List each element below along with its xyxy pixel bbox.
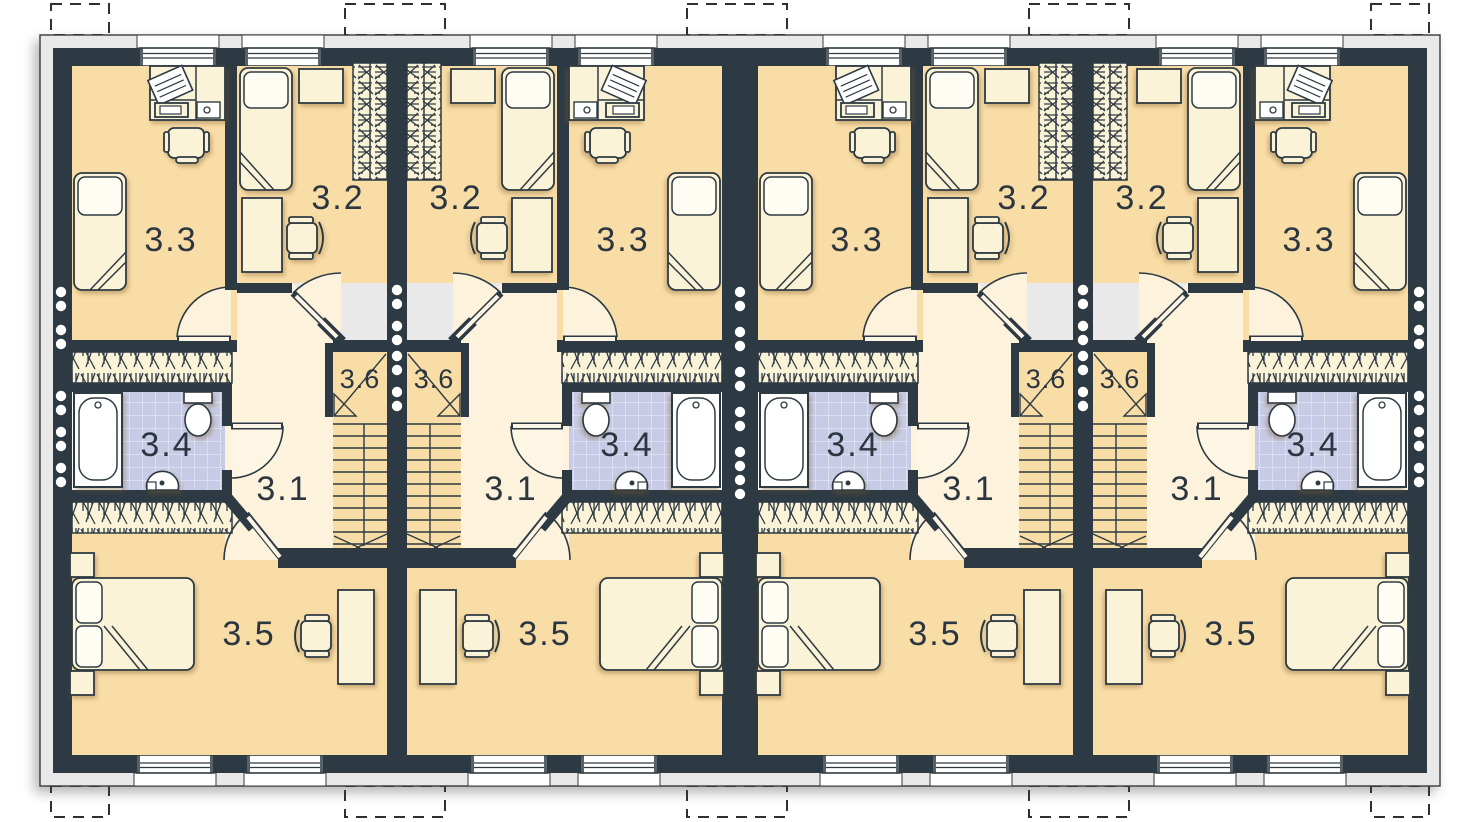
room-label-3-2: 3.2	[311, 179, 364, 217]
room-label-3-1: 3.1	[942, 470, 995, 508]
window-icon	[928, 35, 1010, 66]
window-icon	[578, 755, 660, 786]
window-icon	[1261, 35, 1343, 66]
central-party-wall	[722, 48, 758, 755]
building: 3.3 3.2 3.1 3.4 3.5 3.6 3.3 3.2 3.1 3.4 …	[40, 35, 1440, 786]
room-label-3-2: 3.2	[1115, 179, 1168, 217]
room-label-3-1: 3.1	[484, 470, 537, 508]
window-icon	[470, 35, 552, 66]
room-label-3-1: 3.1	[256, 470, 309, 508]
room-label-3-5: 3.5	[222, 615, 275, 653]
room-label-3-4: 3.4	[140, 426, 193, 464]
window-icon	[575, 35, 657, 66]
room-label-3-1: 3.1	[1170, 470, 1223, 508]
window-icon	[1154, 755, 1236, 786]
room-label-3-3: 3.3	[1282, 221, 1335, 259]
room-label-3-6: 3.6	[414, 364, 455, 394]
room-label-3-4: 3.4	[826, 426, 879, 464]
window-icon	[930, 755, 1012, 786]
room-label-3-6: 3.6	[340, 364, 381, 394]
window-icon	[244, 755, 326, 786]
window-icon	[134, 755, 216, 786]
window-icon	[137, 35, 219, 66]
room-label-3-6: 3.6	[1026, 364, 1067, 394]
room-label-3-4: 3.4	[600, 426, 653, 464]
room-label-3-5: 3.5	[518, 615, 571, 653]
window-icon	[468, 755, 550, 786]
floor-plan-page: 3.3 3.2 3.1 3.4 3.5 3.6 3.3 3.2 3.1 3.4 …	[0, 0, 1466, 822]
window-icon	[1264, 755, 1346, 786]
room-label-3-2: 3.2	[997, 179, 1050, 217]
window-icon	[1156, 35, 1238, 66]
room-label-3-3: 3.3	[830, 221, 883, 259]
room-label-3-6: 3.6	[1100, 364, 1141, 394]
window-icon	[242, 35, 324, 66]
room-label-3-3: 3.3	[596, 221, 649, 259]
room-label-3-5: 3.5	[908, 615, 961, 653]
window-icon	[823, 35, 905, 66]
room-label-3-5: 3.5	[1204, 615, 1257, 653]
room-label-3-2: 3.2	[429, 179, 482, 217]
room-label-3-4: 3.4	[1286, 426, 1339, 464]
room-label-3-3: 3.3	[144, 221, 197, 259]
window-icon	[820, 755, 902, 786]
floor-plan-canvas: 3.3 3.2 3.1 3.4 3.5 3.6 3.3 3.2 3.1 3.4 …	[0, 0, 1466, 822]
